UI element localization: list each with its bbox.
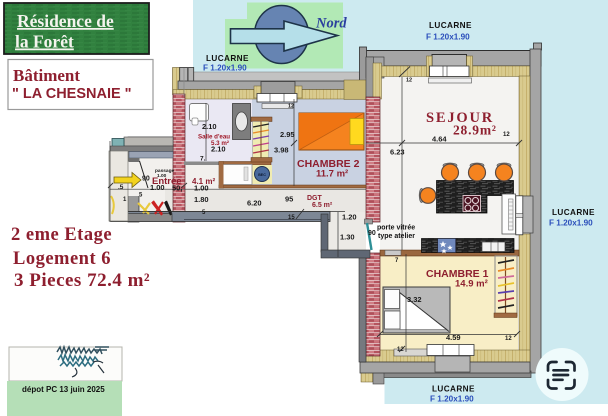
svg-text:F 1.20x1.90: F 1.20x1.90 [203,64,247,73]
svg-text:LUCARNE: LUCARNE [552,208,595,217]
svg-text:12: 12 [406,78,412,84]
svg-text:12: 12 [288,104,294,110]
svg-text:porte vitrée: porte vitrée [377,225,415,232]
svg-text:12: 12 [503,132,510,138]
svg-text:12: 12 [397,347,404,353]
svg-text:15: 15 [288,215,295,221]
svg-text:Entrée: Entrée [152,176,182,187]
svg-text:BEC: BEC [258,173,266,177]
svg-text:2.10: 2.10 [211,145,226,154]
svg-text:3 Pieces 72.4 m²: 3 Pieces 72.4 m² [14,270,150,291]
svg-text:1.30: 1.30 [340,233,355,242]
svg-text:Résidence de: Résidence de [17,11,114,31]
svg-text:2.10: 2.10 [202,122,217,131]
svg-text:" LA CHESNAIE ": " LA CHESNAIE " [12,86,132,102]
svg-text:90: 90 [142,176,150,183]
svg-text:LUCARNE: LUCARNE [206,54,249,63]
svg-text:4.1 m²: 4.1 m² [192,177,215,186]
svg-text:dépot PC 13 juin 2025: dépot PC 13 juin 2025 [22,385,105,394]
svg-text:Nord: Nord [315,16,347,32]
svg-text:95: 95 [285,195,293,204]
svg-text:6.20: 6.20 [247,199,262,208]
svg-text:LUCARNE: LUCARNE [429,21,472,30]
svg-text:Logement 6: Logement 6 [13,249,111,269]
svg-text:type atelier: type atelier [378,233,415,240]
svg-text:90: 90 [368,230,376,237]
svg-text:3.98: 3.98 [274,146,289,155]
svg-text:LUCARNE: LUCARNE [432,385,475,394]
svg-text:4.59: 4.59 [446,333,461,342]
svg-text:F 1.20x1.90: F 1.20x1.90 [430,395,474,404]
svg-text:6.5 m²: 6.5 m² [312,202,333,209]
svg-text:12: 12 [505,336,512,342]
svg-text:la Forêt: la Forêt [15,32,74,52]
svg-text:F 1.20x1.90: F 1.20x1.90 [426,33,470,42]
svg-text:DGT: DGT [307,195,323,202]
svg-text:3.32: 3.32 [407,295,422,304]
svg-text:11.7 m²: 11.7 m² [316,169,348,180]
svg-text:28.9m²: 28.9m² [453,123,497,138]
svg-text:F 1.20x1.90: F 1.20x1.90 [549,219,593,228]
svg-text:Bâtiment: Bâtiment [13,66,80,85]
svg-text:2 eme Etage: 2 eme Etage [11,225,112,245]
svg-text:6.23: 6.23 [390,148,405,157]
svg-text:14.9 m²: 14.9 m² [455,279,488,290]
svg-text:.5: .5 [118,184,124,191]
svg-text:2.95: 2.95 [280,130,295,139]
svg-text:7.: 7. [200,156,206,163]
svg-text:4.64: 4.64 [432,135,447,144]
svg-text:1.20: 1.20 [342,213,357,222]
svg-text:1.80: 1.80 [194,195,209,204]
